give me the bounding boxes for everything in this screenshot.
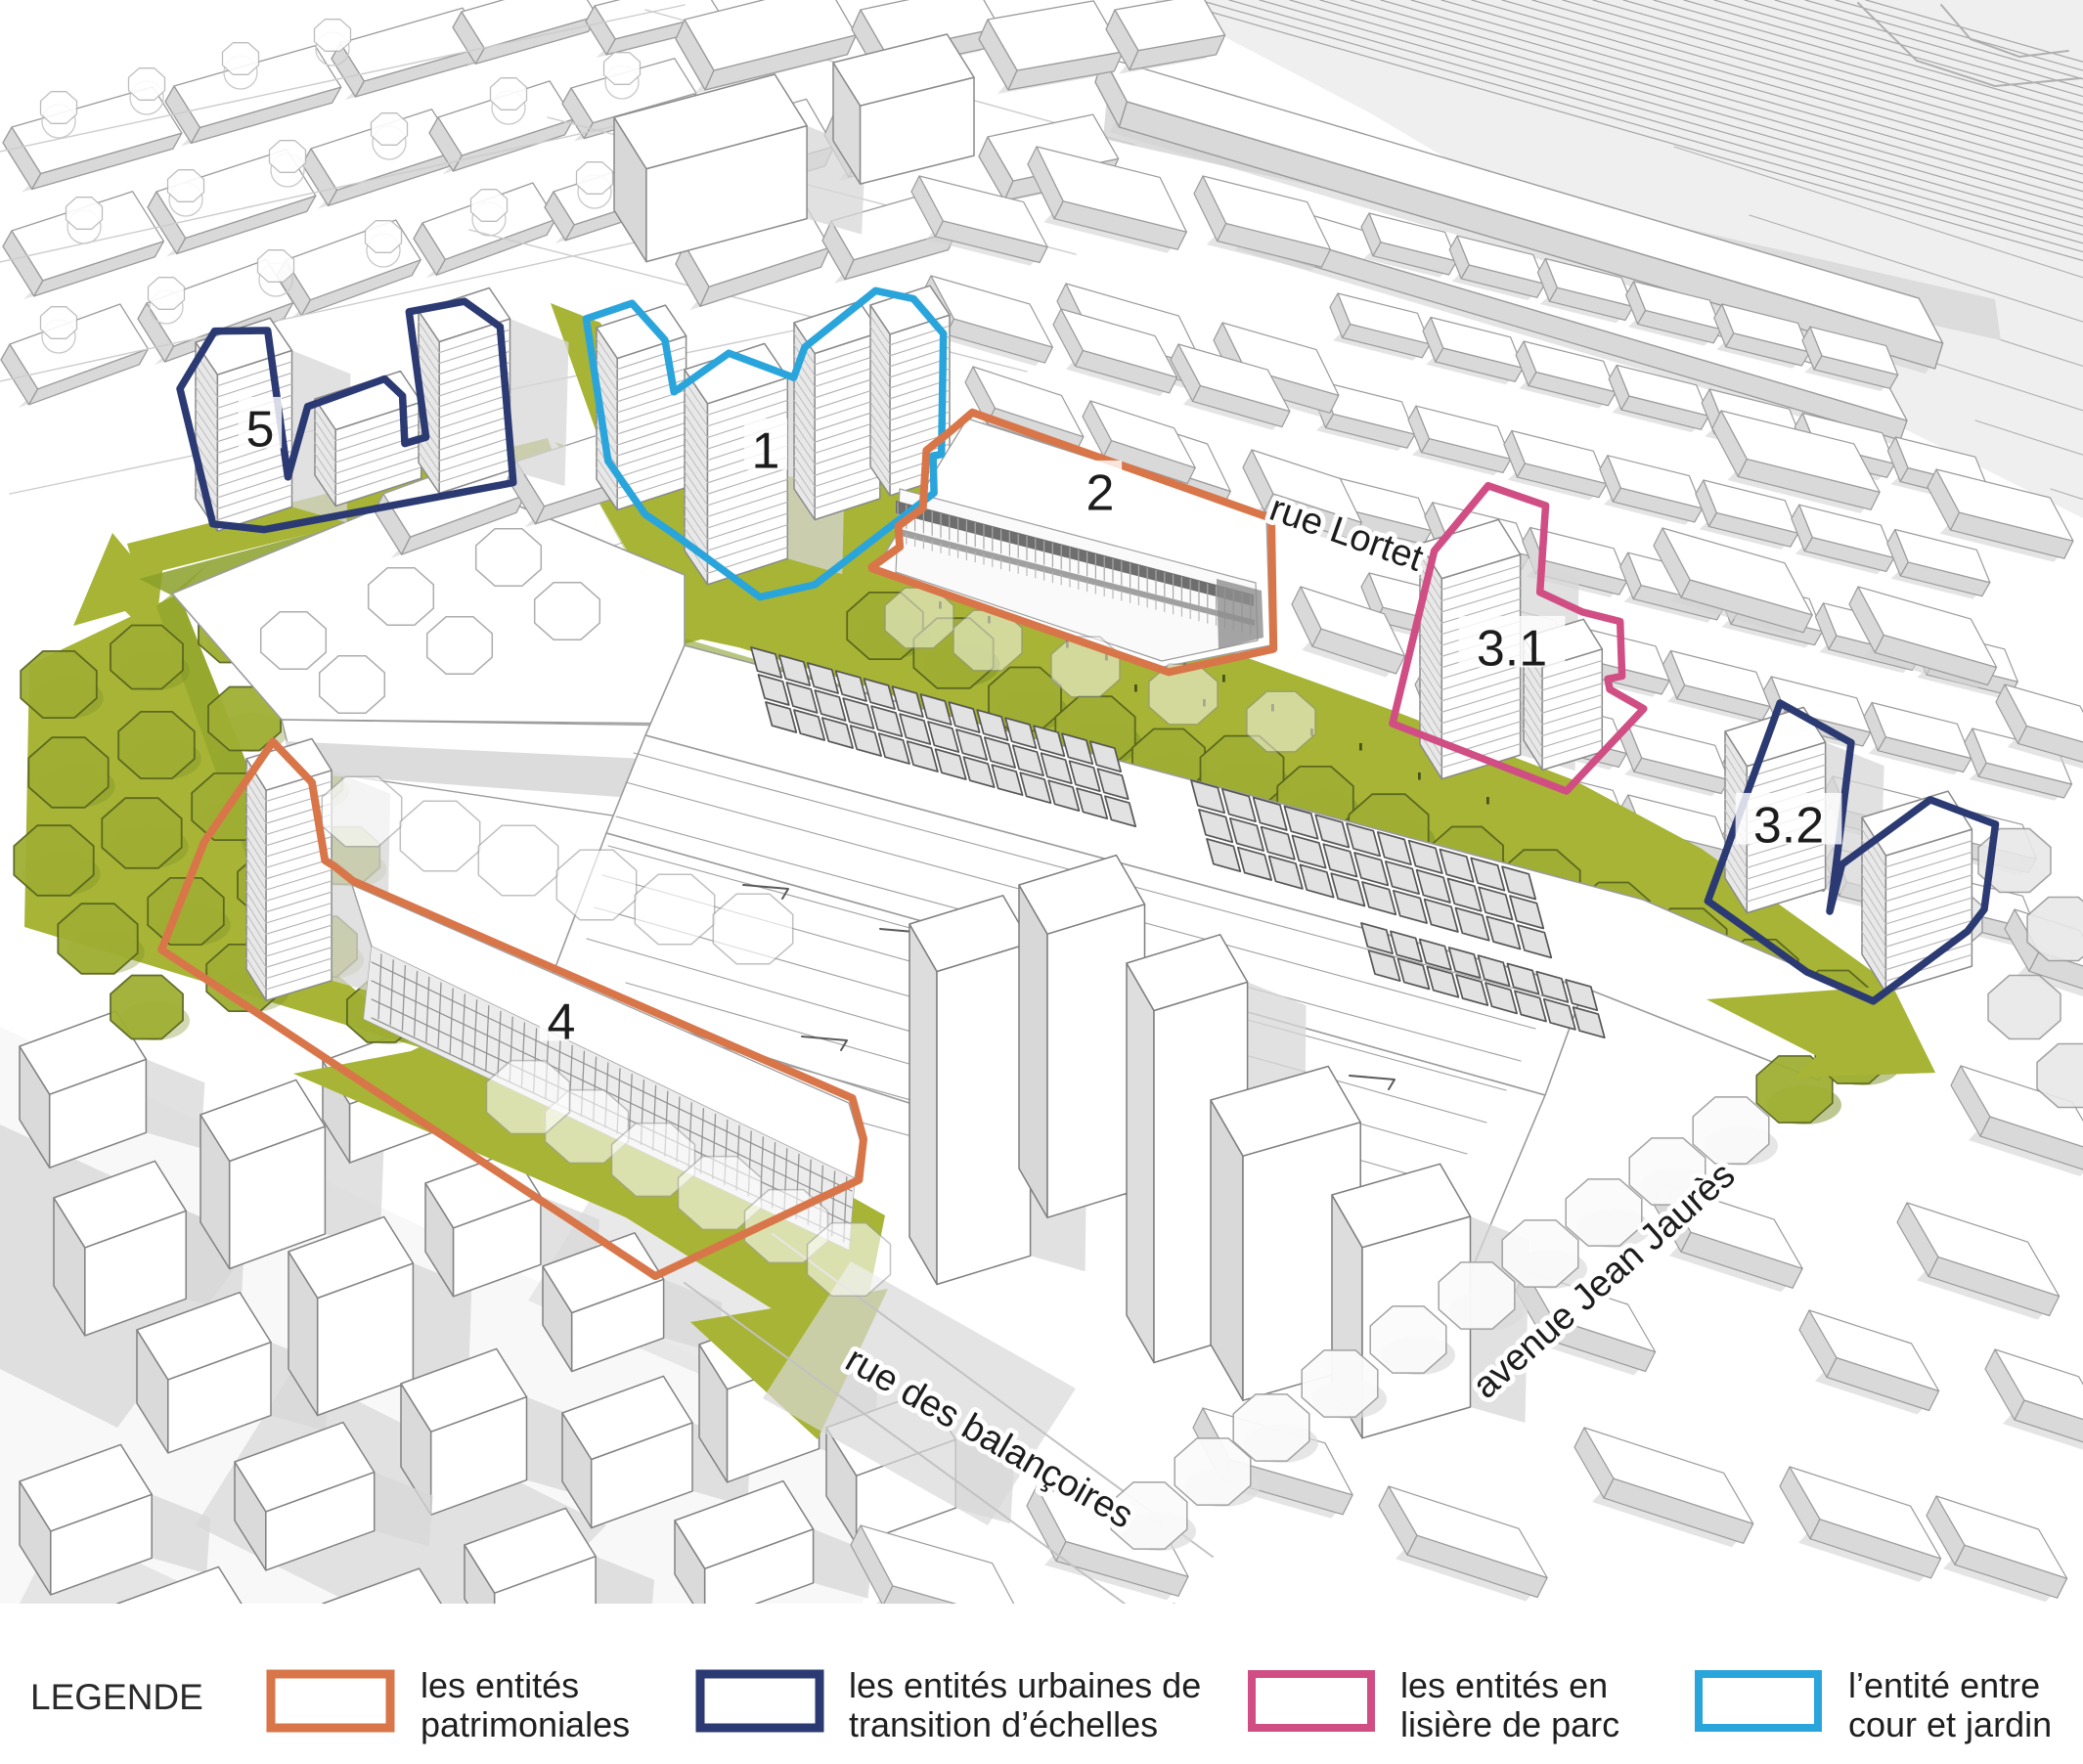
svg-text:l’entité entre: l’entité entre	[1848, 1665, 2040, 1705]
svg-text:lisière de parc: lisière de parc	[1400, 1704, 1619, 1744]
svg-text:transition d’échelles: transition d’échelles	[849, 1704, 1158, 1744]
svg-text:3.1: 3.1	[1477, 621, 1547, 678]
svg-text:3.2: 3.2	[1753, 798, 1824, 855]
svg-text:4: 4	[548, 994, 576, 1051]
svg-text:LEGENDE: LEGENDE	[30, 1677, 203, 1717]
svg-text:les entités urbaines de: les entités urbaines de	[849, 1665, 1201, 1705]
svg-text:les entités: les entités	[421, 1665, 579, 1705]
svg-text:cour et jardin: cour et jardin	[1848, 1704, 2052, 1744]
svg-text:les entités en: les entités en	[1400, 1665, 1608, 1705]
svg-text:1: 1	[752, 423, 780, 480]
svg-text:patrimoniales: patrimoniales	[421, 1704, 630, 1744]
svg-text:2: 2	[1086, 465, 1115, 522]
svg-text:5: 5	[246, 402, 275, 459]
